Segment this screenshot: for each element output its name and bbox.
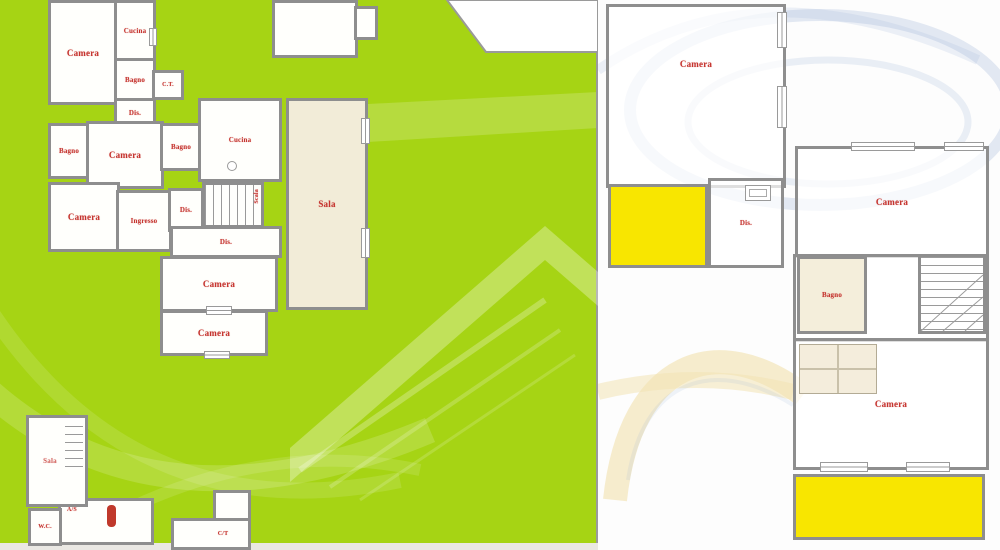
room-camera-s1: Camera xyxy=(160,256,278,312)
room-label: Camera xyxy=(680,59,712,69)
room-label: Camera xyxy=(67,48,99,58)
room-label: A/S xyxy=(67,507,77,513)
room-label: Bagno xyxy=(59,147,79,155)
room-label: Sala xyxy=(43,457,57,465)
stairs-winder-lines xyxy=(921,257,983,331)
room-ct-s: C/T xyxy=(171,518,251,550)
room-label: Camera xyxy=(203,279,235,289)
door-marker xyxy=(107,505,116,527)
room-label: Ingresso xyxy=(131,217,158,225)
closet-fixture xyxy=(799,344,877,394)
room-label: C/T xyxy=(218,531,229,537)
window xyxy=(361,228,370,258)
sink-basin xyxy=(749,189,767,197)
room-label: Camera xyxy=(109,150,141,160)
window xyxy=(820,462,868,472)
window xyxy=(204,351,230,359)
stairs-sw xyxy=(65,426,83,472)
room-label: Bagno xyxy=(822,291,842,299)
room-bagno-first: Bagno xyxy=(797,256,867,334)
balcony-yellow xyxy=(793,474,985,540)
room-label: Scala xyxy=(254,189,260,204)
room-ingresso: Ingresso xyxy=(116,190,172,252)
window xyxy=(206,306,232,315)
room-label: Dis. xyxy=(220,238,232,246)
room-camera-w: Camera xyxy=(48,182,120,252)
window xyxy=(777,86,787,128)
annex-bump xyxy=(354,6,378,40)
room-camera-top: Camera xyxy=(606,4,786,188)
room-cucina-mid: Cucina xyxy=(198,98,282,182)
room-label: Dis. xyxy=(180,206,192,214)
sink-fixture xyxy=(745,185,771,201)
room-bagno-w: Bagno xyxy=(48,123,90,179)
window xyxy=(149,28,157,46)
floorplan-screenshot: Camera Cucina Bagno C.T. Dis. Bagno Came… xyxy=(0,0,1000,550)
room-label: Bagno xyxy=(171,143,191,151)
room-label: Cucina xyxy=(229,136,252,144)
stairs-ground: Scala xyxy=(202,182,264,228)
room-label: Bagno xyxy=(125,76,145,84)
room-sala: Sala xyxy=(286,98,368,310)
room-camera-nw: Camera xyxy=(48,0,118,105)
room-camera-mid: Camera xyxy=(86,121,164,189)
room-label: Camera xyxy=(875,399,907,409)
ground-floor-panel: Camera Cucina Bagno C.T. Dis. Bagno Came… xyxy=(0,0,598,550)
room-dis-low: Dis. xyxy=(170,226,282,258)
stairs-first xyxy=(918,254,986,334)
room-label: C.T. xyxy=(162,82,174,88)
room-bagno-nw: Bagno xyxy=(114,58,156,102)
room-sala-sw: Sala xyxy=(26,415,88,507)
terrace-yellow xyxy=(608,184,708,268)
window xyxy=(906,462,950,472)
room-camera-south: Camera xyxy=(793,338,989,470)
window xyxy=(944,142,984,151)
room-label: Sala xyxy=(318,199,335,209)
room-label: W.C. xyxy=(38,524,52,530)
sink-fixture xyxy=(227,161,237,171)
room-wc: W.C. xyxy=(28,508,62,546)
room-bagno-mid: Bagno xyxy=(160,123,202,171)
annex-structure xyxy=(272,0,358,58)
room-dis-first: Dis. xyxy=(708,178,784,268)
room-label: Cucina xyxy=(124,27,147,35)
room-label: Camera xyxy=(876,197,908,207)
window xyxy=(851,142,915,151)
room-camera-east: Camera xyxy=(795,146,989,258)
room-label: Camera xyxy=(68,212,100,222)
window xyxy=(777,12,787,48)
window xyxy=(361,118,370,144)
room-camera-s2: Camera xyxy=(160,310,268,356)
room-label: Dis. xyxy=(740,219,752,227)
room-label: Camera xyxy=(198,328,230,338)
room-ct: C.T. xyxy=(152,70,184,100)
room-label: Dis. xyxy=(129,109,141,117)
